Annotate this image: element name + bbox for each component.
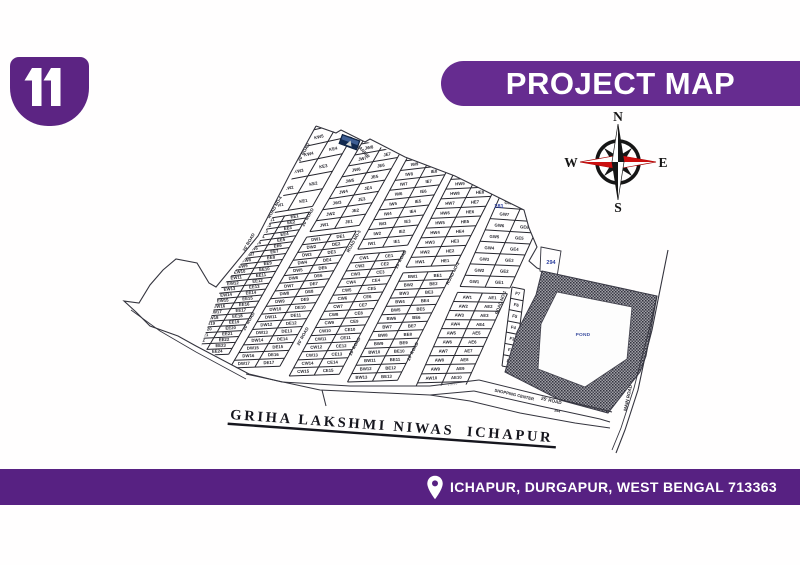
svg-text:HW6: HW6: [440, 210, 450, 216]
svg-text:AE4: AE4: [476, 322, 485, 327]
svg-text:CE14: CE14: [327, 359, 339, 364]
svg-text:AW7: AW7: [439, 349, 449, 354]
svg-text:KE4: KE4: [329, 145, 339, 152]
svg-text:EE5: EE5: [277, 237, 286, 243]
svg-text:BE5: BE5: [416, 306, 425, 311]
svg-text:JE4: JE4: [364, 185, 373, 191]
svg-text:EE13: EE13: [249, 284, 261, 290]
svg-text:ROAD NO-3: ROAD NO-3: [445, 261, 461, 286]
svg-text:JE6: JE6: [377, 162, 386, 168]
svg-text:AW11: AW11: [422, 384, 434, 389]
svg-text:JE2: JE2: [351, 207, 360, 213]
svg-text:W: W: [564, 155, 578, 170]
svg-text:BW11: BW11: [364, 358, 376, 363]
svg-text:AE8: AE8: [460, 357, 469, 362]
svg-text:BE11: BE11: [390, 357, 401, 362]
svg-text:DE8: DE8: [305, 289, 314, 295]
svg-text:EW17: EW17: [210, 309, 223, 315]
svg-text:CW13: CW13: [306, 352, 319, 357]
svg-text:DW14: DW14: [251, 337, 264, 343]
svg-text:DE12: DE12: [286, 320, 298, 326]
svg-text:294: 294: [546, 260, 556, 266]
svg-text:HW10: HW10: [459, 171, 472, 177]
svg-text:BW6: BW6: [386, 316, 396, 321]
svg-text:BE7: BE7: [408, 323, 417, 328]
svg-text:20' ROAD: 20' ROAD: [301, 207, 315, 227]
svg-text:BE12: BE12: [385, 365, 397, 370]
svg-text:GE4: GE4: [510, 246, 519, 251]
svg-text:CE3: CE3: [376, 269, 385, 275]
svg-text:DE13: DE13: [281, 328, 293, 334]
svg-text:BE8: BE8: [403, 332, 412, 337]
svg-text:DE1: DE1: [336, 233, 346, 239]
svg-text:HE1: HE1: [441, 258, 450, 263]
svg-text:EW19: EW19: [203, 321, 216, 327]
svg-text:IW3: IW3: [379, 221, 388, 227]
svg-text:AE7: AE7: [464, 348, 473, 353]
svg-text:KW2: KW2: [284, 185, 295, 192]
svg-text:AW4: AW4: [451, 322, 461, 327]
svg-text:EE4: EE4: [280, 231, 289, 237]
svg-text:EW21: EW21: [196, 332, 209, 338]
svg-text:AE5: AE5: [472, 331, 481, 336]
svg-text:BW13: BW13: [355, 374, 368, 379]
svg-text:EE21: EE21: [222, 331, 233, 337]
svg-text:DE16: DE16: [268, 352, 280, 357]
svg-text:AW8: AW8: [435, 358, 445, 363]
svg-text:HE9: HE9: [481, 180, 490, 185]
svg-text:CE1: CE1: [385, 253, 394, 259]
svg-text:AW3: AW3: [455, 313, 465, 318]
svg-text:DW12: DW12: [260, 322, 273, 328]
svg-text:AE11: AE11: [447, 383, 458, 388]
svg-text:DE9: DE9: [300, 297, 309, 303]
svg-text:BW3: BW3: [399, 291, 409, 296]
svg-text:JE1: JE1: [345, 219, 354, 225]
svg-text:BW4: BW4: [395, 299, 405, 304]
svg-text:HW9: HW9: [455, 181, 465, 187]
svg-text:CE5: CE5: [367, 286, 376, 292]
svg-text:DW4: DW4: [297, 259, 308, 265]
svg-text:GW9: GW9: [509, 189, 520, 195]
svg-text:CW10: CW10: [319, 328, 332, 334]
svg-text:HE6: HE6: [466, 209, 475, 214]
svg-text:KE6: KE6: [349, 111, 359, 118]
svg-text:DW9: DW9: [275, 298, 285, 304]
svg-text:JE8: JE8: [389, 140, 398, 146]
svg-text:DE11: DE11: [290, 312, 301, 318]
svg-text:DE4: DE4: [323, 257, 332, 263]
svg-text:AE3: AE3: [480, 313, 489, 318]
svg-text:EE2: EE2: [287, 219, 296, 225]
svg-text:KW6: KW6: [324, 116, 335, 123]
svg-text:BE2: BE2: [429, 281, 438, 286]
svg-text:CE12: CE12: [336, 343, 348, 349]
svg-text:KE3: KE3: [319, 163, 329, 170]
svg-text:JE9: JE9: [396, 129, 405, 135]
svg-text:HW7: HW7: [445, 200, 455, 206]
svg-text:KW5: KW5: [314, 133, 325, 140]
svg-text:GE8: GE8: [530, 202, 540, 208]
svg-text:GW6: GW6: [494, 223, 505, 229]
svg-text:GE3: GE3: [505, 257, 514, 262]
svg-text:HW2: HW2: [420, 249, 430, 255]
svg-text:HW1: HW1: [415, 259, 425, 265]
svg-text:IW1: IW1: [368, 241, 377, 247]
svg-text:DE14: DE14: [277, 336, 289, 342]
svg-text:HW8: HW8: [450, 191, 460, 197]
svg-text:KE2: KE2: [309, 180, 319, 186]
svg-text:CW6: CW6: [337, 295, 347, 301]
svg-text:CW4: CW4: [346, 279, 356, 285]
svg-text:BE1: BE1: [433, 273, 442, 278]
svg-text:AW9: AW9: [431, 366, 441, 371]
svg-text:CW7: CW7: [333, 304, 343, 310]
svg-text:GW4: GW4: [484, 245, 495, 251]
svg-text:AE6: AE6: [468, 340, 477, 345]
svg-text:IE2: IE2: [399, 228, 406, 234]
svg-text:DW8: DW8: [279, 291, 290, 297]
svg-text:JW9: JW9: [370, 133, 380, 140]
svg-text:254: 254: [554, 408, 561, 413]
svg-text:JW6: JW6: [351, 166, 361, 172]
svg-text:JW2: JW2: [326, 211, 336, 217]
svg-text:EE24: EE24: [212, 348, 223, 353]
svg-text:IW5: IW5: [389, 201, 398, 207]
svg-text:EE17: EE17: [235, 307, 246, 313]
svg-text:GW3: GW3: [479, 256, 490, 262]
svg-text:EE20: EE20: [225, 325, 236, 331]
svg-text:DW13: DW13: [256, 330, 269, 336]
svg-text:IE10: IE10: [440, 148, 450, 154]
svg-text:HE7: HE7: [471, 199, 480, 204]
svg-text:HE10: HE10: [484, 170, 496, 176]
svg-text:CE8: CE8: [354, 310, 363, 315]
svg-text:DW2: DW2: [306, 244, 317, 250]
svg-text:EE1: EE1: [290, 213, 299, 219]
svg-text:IE4: IE4: [409, 208, 417, 214]
svg-text:AW2: AW2: [459, 304, 469, 309]
svg-text:HW4: HW4: [430, 230, 440, 236]
svg-text:GW5: GW5: [489, 234, 500, 240]
svg-text:BW9: BW9: [374, 341, 384, 346]
svg-text:IW2: IW2: [373, 231, 382, 237]
svg-text:HW5: HW5: [435, 220, 445, 226]
svg-text:CE9: CE9: [350, 319, 359, 324]
svg-text:BE13: BE13: [381, 374, 393, 379]
svg-text:HE3: HE3: [451, 238, 460, 243]
svg-text:CW8: CW8: [329, 312, 339, 318]
svg-text:IE9: IE9: [436, 158, 444, 164]
svg-text:BW10: BW10: [368, 349, 381, 354]
svg-text:HW3: HW3: [425, 240, 435, 246]
svg-text:GW1: GW1: [469, 279, 480, 284]
svg-text:IW6: IW6: [394, 191, 403, 197]
svg-text:20' ROAD: 20' ROAD: [406, 341, 420, 361]
svg-text:EE18: EE18: [232, 313, 243, 319]
svg-text:BW5: BW5: [391, 307, 401, 312]
svg-text:GE9: GE9: [535, 191, 545, 197]
svg-text:CW2: CW2: [355, 263, 365, 269]
svg-text:GE2: GE2: [500, 269, 509, 274]
svg-text:HE5: HE5: [461, 219, 470, 224]
svg-text:DE17: DE17: [263, 360, 275, 365]
svg-text:S: S: [614, 200, 622, 215]
svg-text:JW5: JW5: [345, 177, 355, 183]
svg-text:CE10: CE10: [344, 327, 356, 333]
svg-text:GW7: GW7: [499, 211, 510, 217]
svg-text:DW10: DW10: [269, 306, 282, 312]
svg-text:CW1: CW1: [359, 255, 370, 261]
svg-text:F4: F4: [510, 324, 517, 330]
svg-text:CW5: CW5: [342, 287, 352, 293]
svg-text:JW1: JW1: [320, 222, 330, 228]
svg-text:DW1: DW1: [311, 236, 322, 242]
svg-text:SHOPPING CENTER: SHOPPING CENTER: [494, 388, 535, 402]
svg-text:DE5: DE5: [318, 265, 327, 271]
svg-text:BE4: BE4: [421, 298, 430, 303]
svg-text:EE3: EE3: [283, 225, 292, 231]
svg-text:EE19: EE19: [229, 319, 240, 325]
svg-text:AW1: AW1: [463, 295, 473, 300]
svg-text:KE1: KE1: [299, 198, 309, 204]
svg-text:E: E: [658, 155, 667, 170]
svg-text:IE6: IE6: [420, 188, 428, 194]
svg-text:JE7: JE7: [383, 151, 392, 157]
svg-text:GW2: GW2: [474, 268, 485, 273]
svg-text:BE10: BE10: [394, 348, 406, 353]
svg-text:EE16: EE16: [239, 301, 250, 307]
svg-text:CE11: CE11: [340, 335, 351, 341]
svg-text:IW10: IW10: [415, 151, 426, 157]
svg-text:BE6: BE6: [412, 315, 421, 320]
svg-text:AE1: AE1: [488, 295, 497, 300]
svg-text:JW4: JW4: [339, 188, 349, 194]
svg-text:AW10: AW10: [425, 375, 437, 380]
svg-text:CE6: CE6: [363, 294, 372, 300]
svg-text:BW7: BW7: [382, 324, 392, 329]
svg-text:DW6: DW6: [288, 275, 299, 281]
svg-text:JE3: JE3: [358, 196, 367, 202]
svg-text:JE5: JE5: [370, 174, 379, 180]
svg-text:DE10: DE10: [295, 304, 307, 310]
svg-text:CE15: CE15: [323, 368, 335, 373]
svg-text:POND: POND: [576, 332, 591, 338]
svg-text:AE10: AE10: [451, 375, 463, 380]
svg-text:BW8: BW8: [378, 333, 388, 338]
svg-text:DW17: DW17: [238, 361, 251, 366]
svg-text:HE4: HE4: [456, 229, 465, 234]
svg-text:DW15: DW15: [247, 345, 260, 351]
svg-text:EE12: EE12: [252, 278, 264, 284]
svg-text:DE7: DE7: [309, 281, 318, 287]
svg-text:DW3: DW3: [302, 252, 313, 258]
svg-text:BW12: BW12: [360, 366, 373, 371]
svg-text:GE5: GE5: [515, 235, 524, 240]
svg-text:CW9: CW9: [324, 320, 334, 326]
svg-text:DW7: DW7: [284, 283, 295, 289]
svg-text:EE7: EE7: [270, 248, 279, 254]
svg-text:CE2: CE2: [380, 261, 389, 267]
svg-text:JW3: JW3: [332, 200, 342, 206]
svg-text:DE6: DE6: [314, 273, 323, 279]
svg-text:IW7: IW7: [400, 181, 409, 187]
svg-text:CE13: CE13: [331, 351, 343, 356]
svg-text:AW6: AW6: [443, 340, 453, 345]
svg-text:AE2: AE2: [484, 304, 493, 309]
svg-text:281: 281: [494, 204, 503, 210]
svg-text:CW3: CW3: [351, 271, 361, 277]
svg-text:CE4: CE4: [372, 277, 381, 283]
svg-text:IE3: IE3: [404, 218, 411, 224]
svg-text:BW2: BW2: [404, 282, 414, 287]
svg-text:GE1: GE1: [495, 280, 504, 285]
svg-text:DW11: DW11: [265, 314, 278, 320]
svg-text:BE3: BE3: [425, 289, 434, 294]
svg-text:CW15: CW15: [297, 369, 310, 374]
svg-text:EW22: EW22: [193, 338, 206, 344]
svg-text:HE2: HE2: [446, 248, 455, 253]
svg-text:CW12: CW12: [310, 344, 323, 350]
svg-text:AE9: AE9: [456, 366, 465, 371]
svg-text:BW1: BW1: [408, 274, 418, 279]
svg-text:F7: F7: [515, 291, 522, 297]
svg-text:EW20: EW20: [200, 326, 213, 332]
svg-text:AW5: AW5: [447, 331, 457, 336]
svg-text:BE9: BE9: [399, 340, 408, 345]
svg-text:IE1: IE1: [393, 238, 400, 244]
svg-text:EE23: EE23: [215, 343, 226, 348]
svg-text:F6: F6: [513, 302, 520, 308]
svg-text:F5: F5: [512, 313, 519, 319]
svg-text:EE15: EE15: [242, 295, 254, 301]
svg-text:CW11: CW11: [315, 336, 328, 342]
svg-text:DE2: DE2: [332, 241, 341, 247]
svg-text:IW8: IW8: [405, 171, 414, 177]
svg-text:N: N: [613, 109, 623, 124]
svg-text:CE7: CE7: [359, 302, 368, 307]
svg-text:CW14: CW14: [301, 360, 314, 365]
svg-text:EE22: EE22: [219, 337, 230, 343]
svg-text:KW3: KW3: [294, 167, 305, 174]
svg-text:IE5: IE5: [415, 198, 423, 204]
svg-text:DE15: DE15: [272, 344, 284, 350]
svg-text:DW5: DW5: [293, 267, 304, 273]
svg-text:IE7: IE7: [425, 178, 433, 184]
svg-text:IW4: IW4: [384, 211, 393, 217]
svg-text:DE3: DE3: [327, 249, 336, 255]
svg-text:DW16: DW16: [242, 353, 255, 358]
